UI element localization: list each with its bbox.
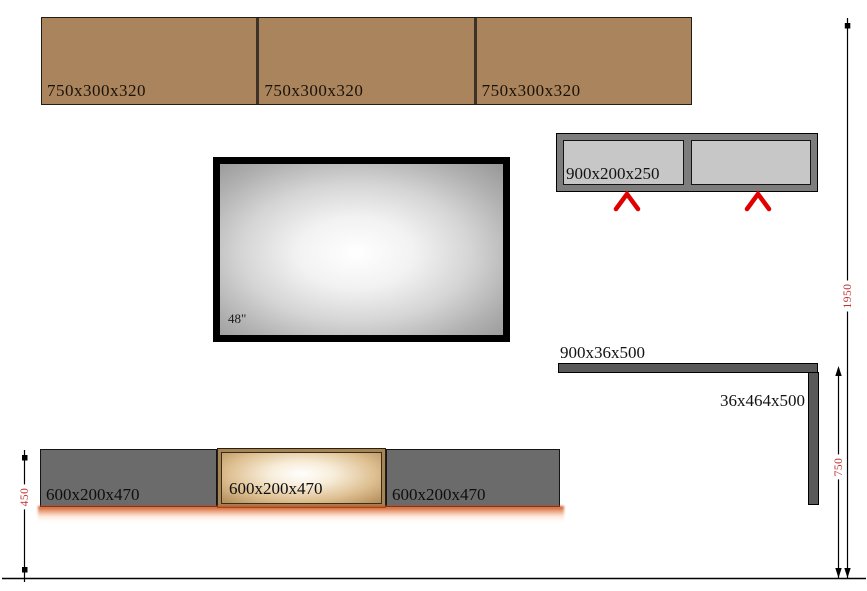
wall-shelf-right-door xyxy=(691,140,812,185)
angle-shelf-top-dimensions-label: 900x36x500 xyxy=(560,343,645,363)
angle-shelf-vertical-panel xyxy=(808,372,819,505)
tv-screen: 48" xyxy=(220,164,503,335)
chevron-up-icon xyxy=(747,194,769,209)
lower-cabinet-row: 600x200x470 600x200x470 600x200x470 xyxy=(40,449,560,507)
angle-shelf-horizontal-panel xyxy=(558,363,818,373)
lower-cabinet-right: 600x200x470 xyxy=(386,449,560,507)
wall-shelf-unit: 900x200x250 xyxy=(556,133,818,192)
upper-cabinet-2-dimensions-label: 750x300x320 xyxy=(264,81,363,101)
under-cabinet-light-glow xyxy=(38,506,564,522)
upper-cabinet-2: 750x300x320 xyxy=(256,18,473,104)
tv-size-label: 48" xyxy=(228,311,246,327)
dimension-value-1950: 1950 xyxy=(842,281,854,312)
arrow-up-icon xyxy=(835,366,841,376)
dimension-value-750: 750 xyxy=(833,455,845,480)
wall-shelf-left-door: 900x200x250 xyxy=(563,140,684,185)
arrow-down-icon xyxy=(844,568,850,578)
dimension-tick-1950-top-icon xyxy=(845,23,851,29)
dimension-tick-bottom-icon xyxy=(22,567,28,573)
lower-cabinet-left: 600x200x470 xyxy=(40,449,217,507)
upper-cabinet-row: 750x300x320 750x300x320 750x300x320 xyxy=(41,17,692,105)
tv-frame: 48" xyxy=(213,157,510,342)
wall-shelf-dimensions-label: 900x200x250 xyxy=(566,164,660,184)
upper-cabinet-1: 750x300x320 xyxy=(42,18,256,104)
angle-shelf-side-dimensions-label: 36x464x500 xyxy=(693,391,805,411)
dimension-value-450: 450 xyxy=(19,485,31,510)
chevron-up-icon xyxy=(616,194,638,209)
upper-cabinet-3: 750x300x320 xyxy=(474,18,691,104)
arrow-down-icon xyxy=(835,568,841,578)
upper-cabinet-1-dimensions-label: 750x300x320 xyxy=(47,81,146,101)
lower-cabinet-right-dimensions-label: 600x200x470 xyxy=(392,485,486,505)
lower-cabinet-middle-lit: 600x200x470 xyxy=(217,448,386,508)
dimension-tick-top-icon xyxy=(22,455,28,461)
lower-cabinet-left-dimensions-label: 600x200x470 xyxy=(46,485,140,505)
furniture-elevation-drawing: 750x300x320 750x300x320 750x300x320 48" … xyxy=(0,0,867,591)
lower-cabinet-middle-glass: 600x200x470 xyxy=(221,452,382,504)
lower-cabinet-middle-dimensions-label: 600x200x470 xyxy=(229,479,323,499)
upper-cabinet-3-dimensions-label: 750x300x320 xyxy=(482,81,581,101)
